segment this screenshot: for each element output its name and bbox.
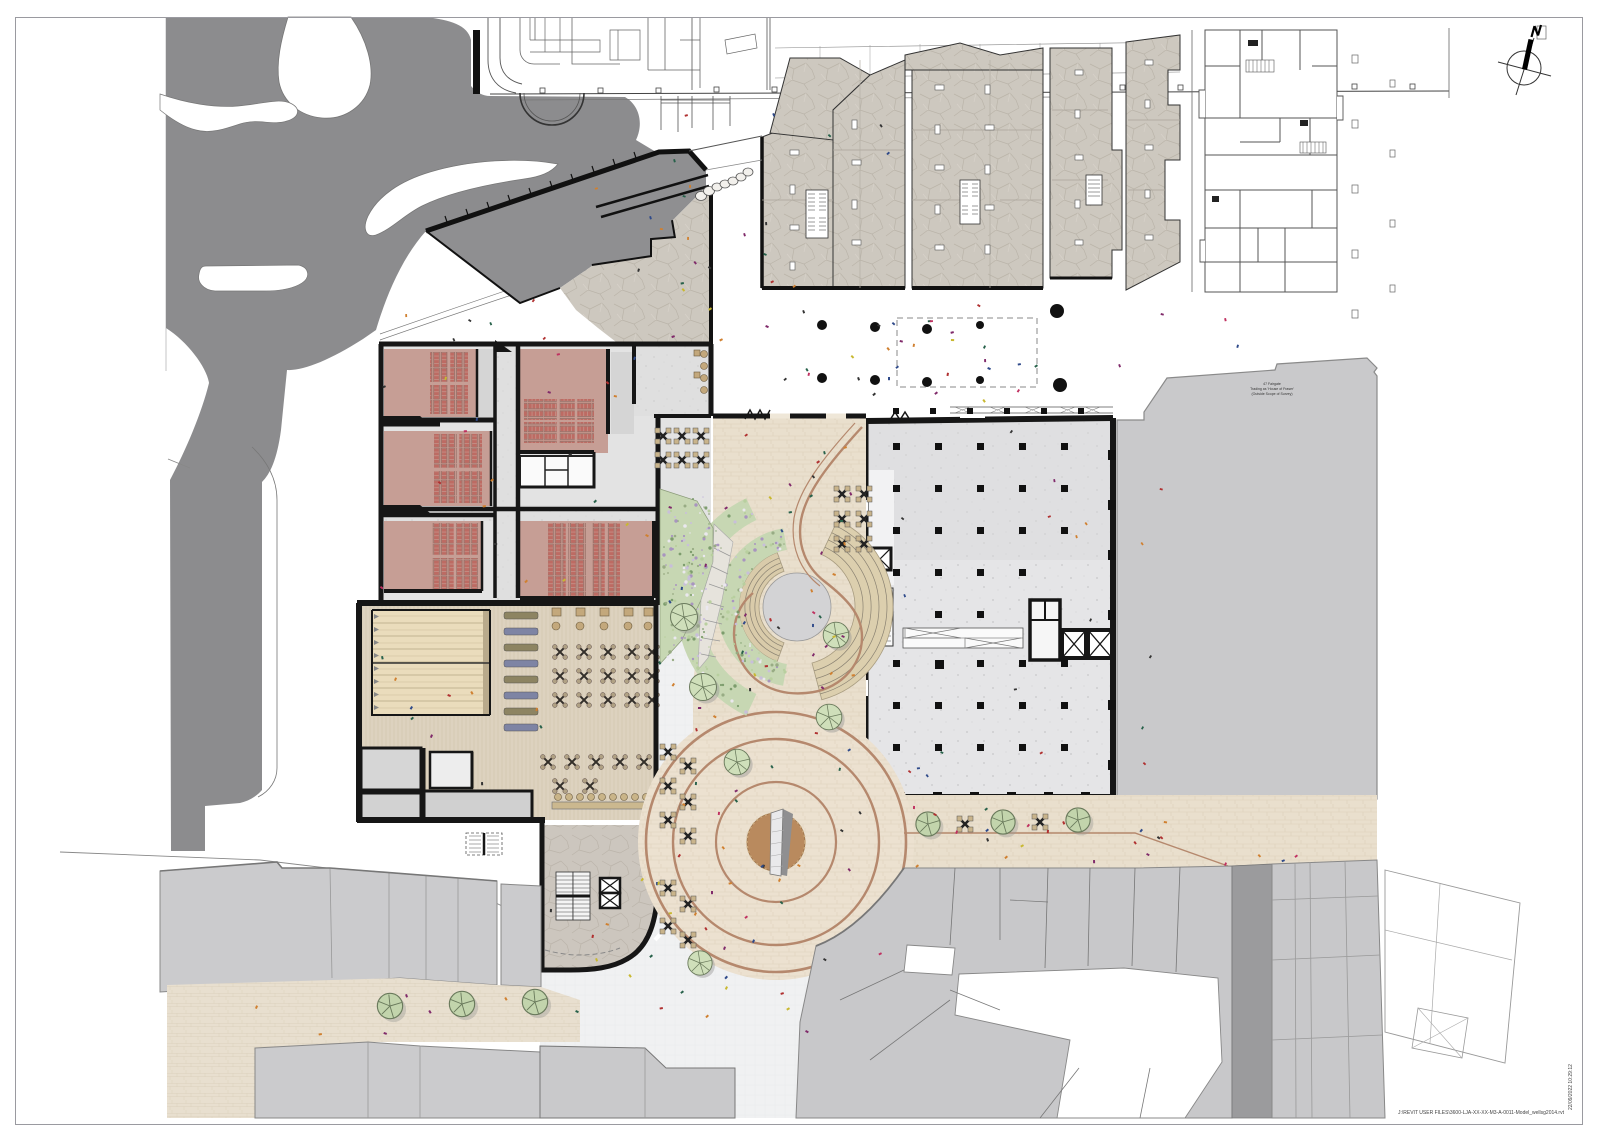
- svg-text:Trading as 'House of Fraser': Trading as 'House of Fraser': [1250, 387, 1294, 391]
- svg-text:(Outside Scope of Survey): (Outside Scope of Survey): [1251, 392, 1292, 396]
- svg-text:J:\REVIT USER FILES\3600-LJA-X: J:\REVIT USER FILES\3600-LJA-XX-XX-M3-A-…: [1398, 1110, 1565, 1116]
- svg-text:47 Fairgate: 47 Fairgate: [1263, 382, 1281, 386]
- svg-text:22/09/2022 10:29:12: 22/09/2022 10:29:12: [1568, 1064, 1574, 1110]
